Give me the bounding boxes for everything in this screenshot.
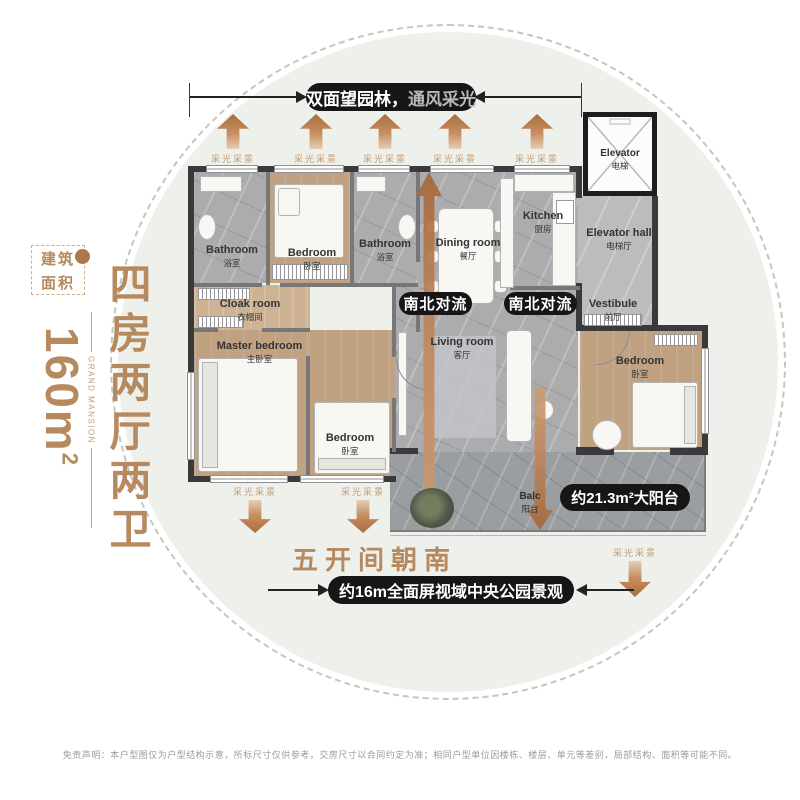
window-top-bath2 (358, 165, 410, 173)
wall-kitchen-bottom (510, 286, 580, 290)
room-label-bathroom1: Bathroom浴室 (197, 244, 267, 268)
window-top-bath1 (206, 165, 258, 173)
brand-column: GRAND MANSION (85, 312, 97, 528)
window-top-bedroom (274, 165, 344, 173)
window-bottom-bedmid (300, 475, 384, 483)
balcony-rail-outer (390, 535, 706, 536)
light-label: 采光采景 (333, 485, 393, 498)
area-badge-dot (75, 249, 90, 264)
wall-cloak-bottom-b (262, 328, 310, 332)
view-arrow-line-left (268, 589, 324, 591)
bedroom-right-wardrobe (654, 334, 698, 346)
chair-right-icon (592, 420, 622, 450)
wall-cloak-bottom-a (194, 328, 218, 332)
brand-rule-bottom (91, 448, 92, 528)
room-label-elevator-hall: Elevator hall电梯厅 (582, 227, 656, 251)
wall-master-bedmid (306, 356, 310, 478)
wall-kitchen-right (576, 166, 582, 198)
room-label-bedroom-mid: Bedroom卧室 (315, 432, 385, 456)
room-label-living: Living room客厅 (427, 336, 497, 360)
view-pill: 约16m全面屏视域中央公园景观 (328, 576, 574, 604)
window-left-master (187, 372, 195, 460)
room-label-elevator: Elevator电梯 (585, 148, 655, 171)
measure-tick-right (581, 83, 582, 117)
toilet-bath2-icon (398, 214, 416, 240)
view-arrowhead-left-icon (576, 584, 587, 596)
room-label-master: Master bedroom主卧室 (212, 340, 307, 364)
headline-vertical: 四房两厅两卫 (97, 262, 158, 556)
light-label: 采光采景 (286, 152, 346, 165)
room-label-dining: Dining room餐厅 (433, 237, 503, 261)
poster: 建筑 面积 160m2 GRAND MANSION 四房两厅两卫 双面望园林，通… (0, 0, 800, 800)
brand-rule-top (91, 312, 92, 352)
brand-text: GRAND MANSION (87, 356, 96, 444)
tv-cabinet (398, 332, 407, 436)
room-label-cloak: Cloak room衣帽间 (215, 298, 285, 322)
light-label: 采光采景 (225, 485, 285, 498)
light-label: 采光采景 (355, 152, 415, 165)
bed-right-pillows (684, 386, 696, 444)
balcony-rail (390, 530, 706, 532)
wall-under-toprooms-b (280, 283, 418, 287)
light-label: 采光采景 (203, 152, 263, 165)
area-badge-line1: 建筑 (41, 251, 75, 268)
banner-pill: 双面望园林，通风采光 (306, 83, 476, 111)
wall-right-upper (652, 196, 658, 330)
area-badge-line2: 面积 (41, 275, 75, 292)
light-label: 采光采景 (605, 546, 665, 559)
room-label-bedroom-right: Bedroom卧室 (605, 355, 675, 379)
bed-master-pillows (202, 362, 218, 468)
wall-under-toprooms-a (194, 283, 262, 287)
south-facing-label: 五开间朝南 (292, 540, 457, 577)
room-label-bathroom2: Bathroom浴室 (350, 238, 420, 262)
window-right-bedroom (701, 348, 709, 434)
light-label: 采光采景 (507, 152, 567, 165)
convection-pill-right: 南北对流 (504, 292, 577, 315)
vanity-bath2 (356, 176, 386, 192)
vanity-bath1 (200, 176, 242, 192)
light-label: 采光采景 (425, 152, 485, 165)
toilet-bath1-icon (198, 214, 216, 240)
area-value: 160m2 (35, 302, 89, 492)
balcony-area-pill: 约21.3m²大阳台 (560, 484, 690, 511)
room-label-kitchen: Kitchen厨房 (508, 210, 578, 234)
balcony-plant-icon (410, 488, 454, 528)
room-label-balcony: Balc阳台 (495, 491, 565, 514)
bed-mid-pillows (318, 458, 386, 470)
banner-arrow-line-right (484, 96, 581, 98)
wall-bedmid-living-b (392, 398, 396, 452)
disclaimer-text: 免责声明：本户型图仅为户型结构示意，所标尺寸仅供参考，交房尺寸以合同约定为准；相… (0, 748, 800, 761)
room-label-vestibule: Vestibule前厅 (578, 298, 648, 322)
sofa (506, 330, 532, 442)
banner-arrow-line-left (190, 96, 298, 98)
area-superscript: 2 (57, 453, 82, 467)
wall-bed-bath2 (350, 172, 354, 285)
kitchen-counter-top (514, 174, 574, 192)
window-bottom-master (210, 475, 288, 483)
banner-text-secondary: 通风采光 (408, 85, 476, 110)
window-top-kitchen (514, 165, 570, 173)
banner-text-primary: 双面望园林， (306, 85, 408, 110)
bed-top-pillow (278, 188, 300, 216)
wall-bedroom-right-bottom-b (670, 447, 708, 455)
measure-tick-left (189, 83, 190, 117)
balcony-rail-right (704, 455, 706, 532)
room-label-bedroom-top: Bedroom卧室 (277, 247, 347, 271)
wall-bedmid-living-a (392, 287, 396, 357)
window-top-dining (430, 165, 494, 173)
convection-pill-left: 南北对流 (399, 292, 472, 315)
